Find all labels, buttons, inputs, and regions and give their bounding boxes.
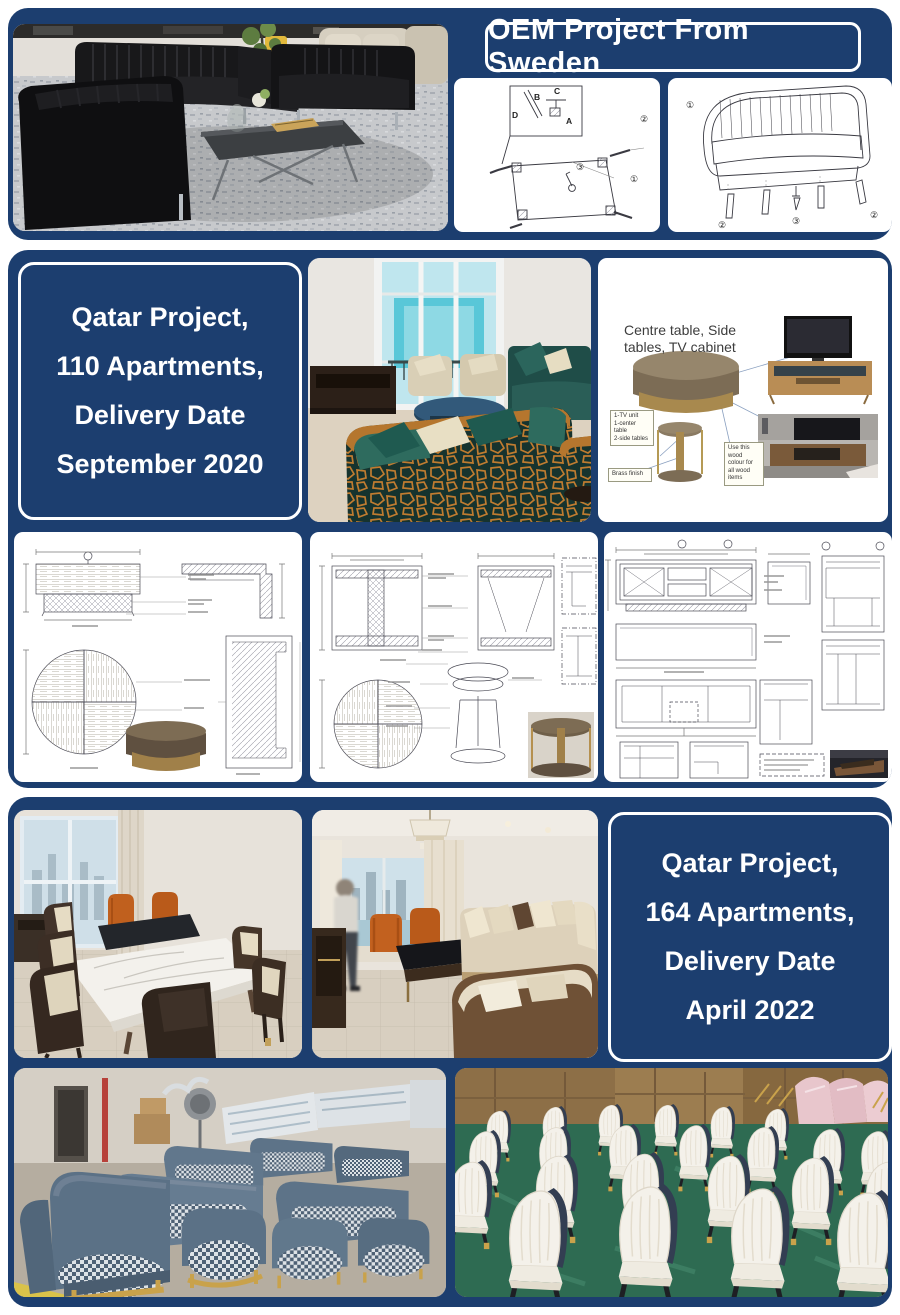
svg-text:②: ② xyxy=(640,114,648,124)
svg-text:②: ② xyxy=(870,210,878,220)
photo-green-sofa-apartment xyxy=(308,258,591,522)
cad-drawing-side-table xyxy=(310,532,598,782)
photo-black-sofa-showroom xyxy=(13,24,448,231)
card-line: 110 Apartments, xyxy=(56,342,264,391)
diagram-centre-table-tv-cabinet: Centre table, Side tables, TV cabinet 1-… xyxy=(598,258,888,522)
diagram-note-brass: Brass finish xyxy=(608,468,652,482)
section-qatar-110: Qatar Project, 110 Apartments, Delivery … xyxy=(8,250,892,788)
tv-unit-render xyxy=(768,316,872,404)
cad-drawing-tv-cabinet xyxy=(604,532,892,782)
product-showcase-page: OEM Project From Sweden xyxy=(0,8,900,1307)
photo-factory-armchairs xyxy=(14,1068,446,1297)
assembly-drawing-sofa: ① ② ③ ② xyxy=(668,78,892,232)
side-table-photo xyxy=(528,712,594,778)
assembly-drawing-base: B C D A ② ① ③ xyxy=(454,78,660,232)
card-line: Delivery Date xyxy=(664,937,835,986)
qatar-164-card: Qatar Project, 164 Apartments, Delivery … xyxy=(608,812,892,1062)
section-qatar-164: Qatar Project, 164 Apartments, Delivery … xyxy=(8,797,892,1307)
card-line: Qatar Project, xyxy=(661,839,838,888)
svg-text:③: ③ xyxy=(792,216,800,226)
photo-white-chairs-rows xyxy=(455,1068,888,1297)
black-sofa-front xyxy=(18,76,191,230)
svg-text:D: D xyxy=(512,110,518,120)
table-render-small xyxy=(126,721,206,771)
oem-title: OEM Project From Sweden xyxy=(488,14,858,80)
svg-text:①: ① xyxy=(630,174,638,184)
svg-text:①: ① xyxy=(686,100,694,110)
diagram-note-items: 1-TV unit 1-center table 2-side tables xyxy=(610,410,654,446)
pink-wrapped-chairs xyxy=(795,1077,888,1126)
assembly2-step-numbers: ① ② ③ ② xyxy=(686,100,878,230)
card-line: Delivery Date xyxy=(74,391,245,440)
tv-cabinet-photo xyxy=(830,750,888,778)
diagram-note-wood: Use this wood colour for all wood items xyxy=(724,442,764,486)
photo-living-room xyxy=(312,810,598,1058)
svg-text:A: A xyxy=(566,116,572,126)
side-sofa-right xyxy=(560,436,591,522)
section-oem-project: OEM Project From Sweden xyxy=(8,8,892,240)
card-line: 164 Apartments, xyxy=(645,888,854,937)
svg-text:③: ③ xyxy=(576,162,584,172)
card-line: September 2020 xyxy=(56,440,263,489)
card-line: April 2022 xyxy=(685,986,814,1035)
diagram-title: Centre table, Side tables, TV cabinet xyxy=(624,322,774,356)
svg-text:C: C xyxy=(554,86,560,96)
cad-drawing-centre-table xyxy=(14,532,302,782)
sideboard-left xyxy=(312,928,346,1028)
oem-title-box: OEM Project From Sweden xyxy=(485,22,861,72)
svg-text:B: B xyxy=(534,92,540,102)
qatar-110-card: Qatar Project, 110 Apartments, Delivery … xyxy=(18,262,302,520)
photo-dining-room xyxy=(14,810,302,1058)
curved-armchair-front xyxy=(452,964,598,1058)
card-line: Qatar Project, xyxy=(71,293,248,342)
tv-wall-photo xyxy=(758,414,878,478)
round-centre-table xyxy=(633,351,739,413)
tv-console xyxy=(310,366,396,414)
svg-text:②: ② xyxy=(718,220,726,230)
